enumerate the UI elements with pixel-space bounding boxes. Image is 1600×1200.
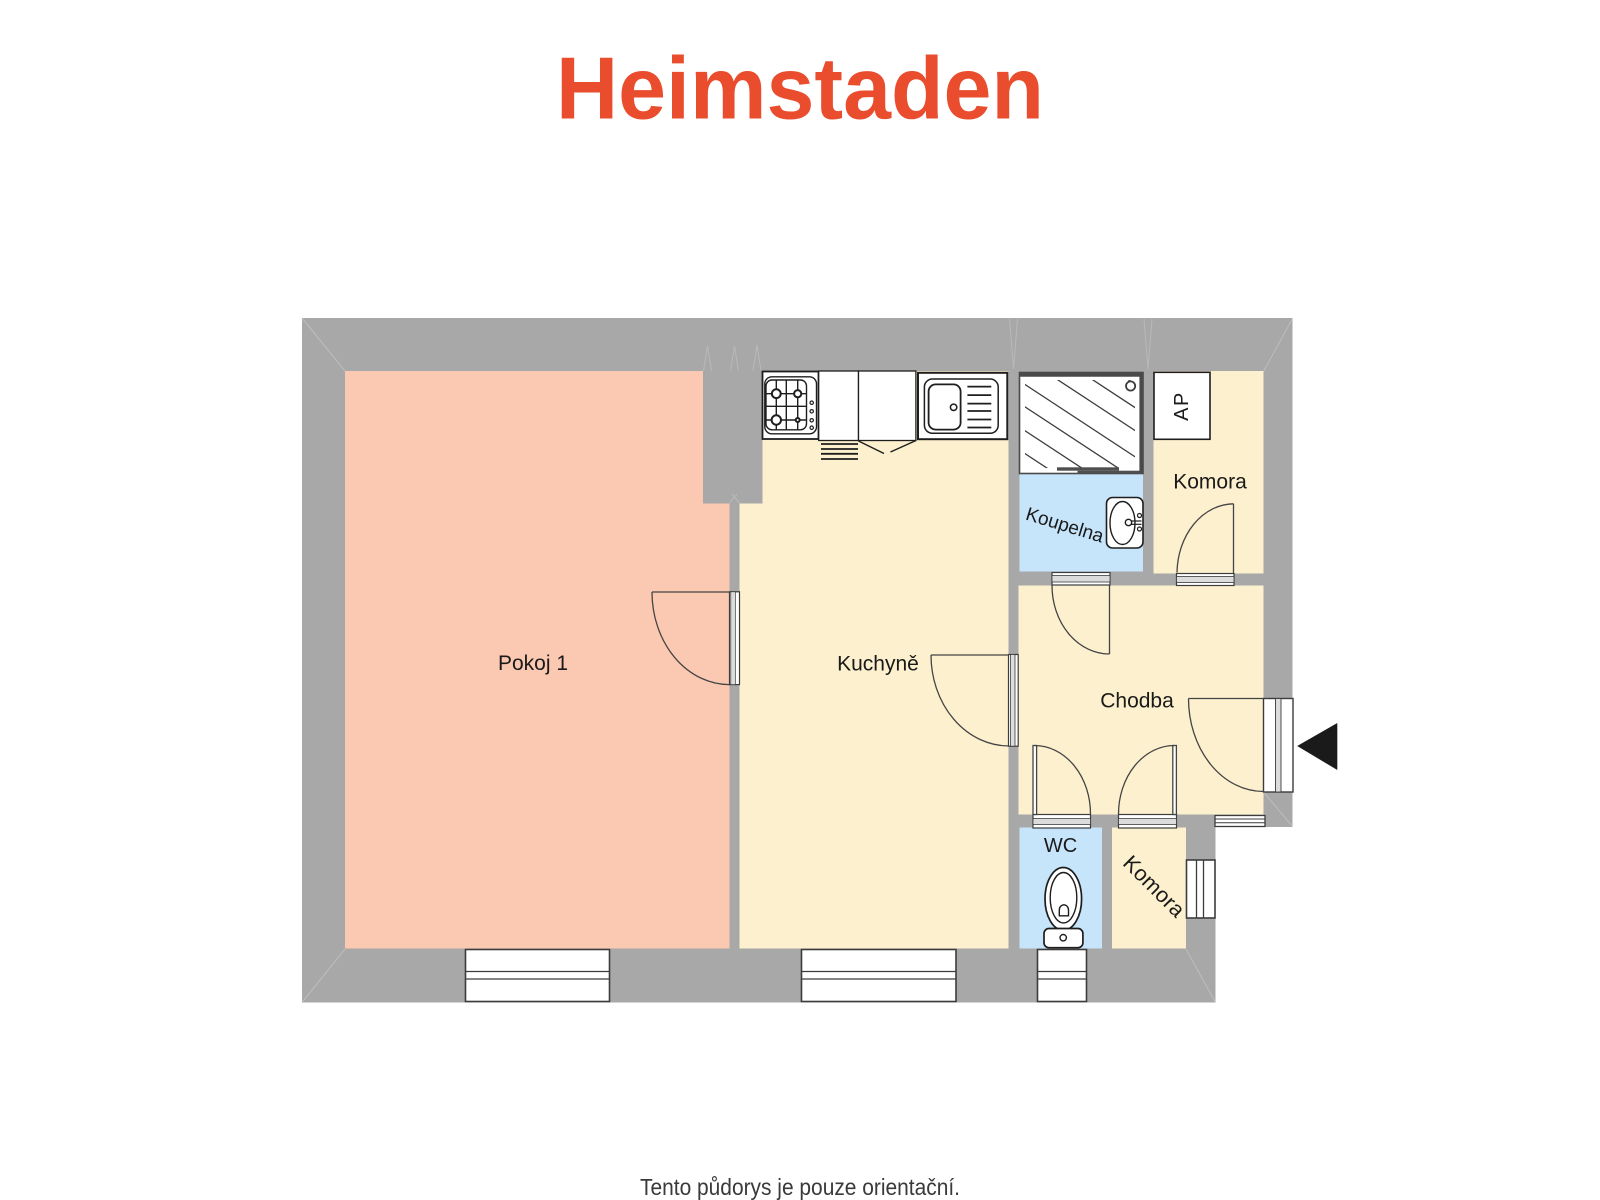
svg-text:Heimstaden: Heimstaden [556,39,1044,138]
svg-text:Komora: Komora [1173,471,1247,494]
svg-text:WC: WC [1044,835,1077,857]
svg-text:Chodba: Chodba [1100,690,1174,713]
svg-text:AP: AP [1171,391,1193,421]
svg-text:Tento půdorys je pouze orienta: Tento půdorys je pouze orientační. [640,1174,960,1200]
svg-text:Kuchyně: Kuchyně [837,653,919,676]
svg-text:Pokoj 1: Pokoj 1 [498,652,568,675]
